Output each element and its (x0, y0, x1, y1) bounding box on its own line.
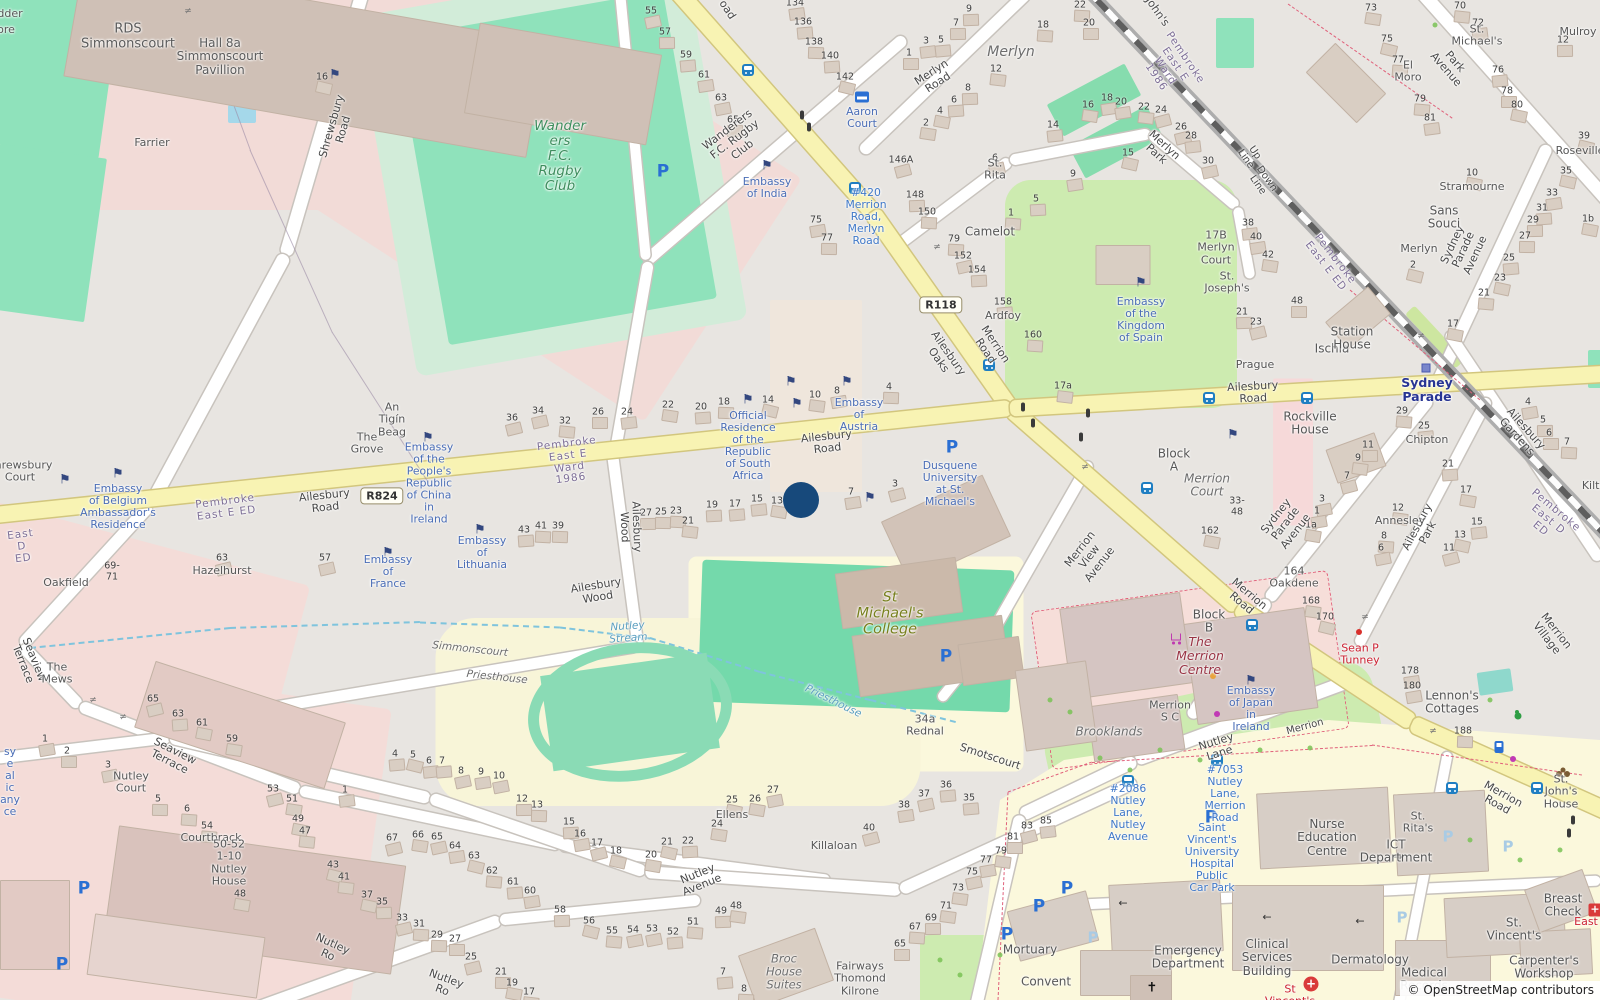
label-killaloan: Killaloan (811, 840, 858, 852)
building (1184, 140, 1201, 154)
building (909, 200, 925, 213)
label-mulroy: Mulroy (1559, 26, 1596, 38)
building (1537, 425, 1553, 437)
label-fairways: Fairways Thomond Kilrone (834, 961, 886, 998)
parking-icon[interactable]: P (1001, 927, 1013, 944)
building (738, 994, 755, 1000)
embassy-flag-icon: ⚑ (1135, 277, 1147, 290)
building (1007, 842, 1023, 854)
building (486, 875, 503, 888)
label-embassy: Embassy of Lithuania (457, 535, 507, 571)
clinic-icon: + (1589, 904, 1600, 917)
building (1030, 204, 1047, 217)
building (797, 26, 814, 39)
building (1362, 450, 1378, 462)
building (1232, 885, 1384, 971)
building (697, 79, 715, 93)
gate-icon: ≠ (1081, 464, 1089, 473)
building (948, 104, 965, 117)
building (971, 275, 988, 288)
label-33-48: 33-48 (1229, 496, 1245, 517)
parking-lot-icon: P (1443, 830, 1454, 845)
building (1066, 178, 1084, 192)
building (592, 417, 608, 429)
building (1519, 928, 1593, 978)
bus-stop-icon[interactable] (849, 182, 861, 194)
building (606, 935, 623, 948)
bus-stop-icon[interactable] (1203, 392, 1215, 404)
train-station-icon[interactable] (1422, 364, 1431, 373)
building (714, 102, 732, 117)
traffic-signal-icon (1567, 829, 1571, 838)
label-merlyn: Merlyn (987, 45, 1035, 61)
building (1391, 512, 1409, 526)
embassy-flag-icon: ⚑ (785, 376, 797, 389)
building (727, 125, 743, 137)
building (1543, 438, 1559, 450)
building (1442, 551, 1461, 567)
poi-dot-icon (1214, 711, 1220, 717)
embassy-flag-icon: ⚑ (382, 547, 394, 560)
embassy-flag-icon: ⚑ (1245, 675, 1257, 688)
label-official: Official Residence of the Republic of So… (720, 410, 775, 482)
parking-icon[interactable]: P (56, 957, 68, 974)
location-marker[interactable] (783, 482, 819, 518)
map-canvas[interactable]: ⚑⚑⚑⚑⚑⚑⚑⚑⚑⚑⚑⚑⚑⚑⚑PPPPPPPPPPPPP≠≠≠≠≠≠≠≠←←→←… (0, 0, 1600, 1000)
building (935, 44, 952, 57)
tree-icon (1468, 838, 1473, 843)
building (644, 859, 662, 874)
oneway-arrow-icon: ← (1262, 912, 1271, 923)
fuel-station-icon (1495, 741, 1504, 753)
embassy-flag-icon: ⚑ (422, 432, 434, 445)
building (710, 828, 728, 842)
embassy-flag-icon: ⚑ (841, 376, 853, 389)
building (1501, 96, 1517, 108)
building (431, 940, 447, 953)
building (1417, 430, 1434, 444)
building (518, 534, 535, 547)
building (738, 928, 834, 1000)
building (725, 803, 743, 818)
building (921, 217, 938, 230)
building (1046, 129, 1063, 143)
building (1459, 494, 1477, 509)
building (917, 797, 935, 812)
building (994, 855, 1012, 869)
parking-icon[interactable]: P (657, 164, 669, 181)
bus-stop-icon[interactable] (1211, 754, 1223, 766)
route-shield: R824 (360, 487, 403, 504)
building (464, 960, 482, 976)
building (531, 810, 547, 823)
building (1005, 217, 1022, 230)
parking-lot-icon: P (1088, 931, 1099, 946)
shopping-cart-icon (1171, 634, 1181, 641)
label-shrewsbury: Shrewsbury Court (0, 460, 52, 485)
building (933, 115, 951, 130)
tree-icon (1308, 746, 1313, 751)
building (948, 244, 965, 257)
building (1137, 111, 1154, 125)
building (467, 859, 485, 875)
tree-icon (938, 958, 943, 963)
building (413, 929, 430, 942)
building (1121, 156, 1139, 171)
label-block: Block A (1158, 448, 1190, 475)
building (563, 827, 580, 840)
building (1414, 103, 1431, 116)
embassy-flag-icon: ⚑ (329, 69, 341, 82)
building (1074, 10, 1091, 23)
community-icon (1561, 768, 1566, 773)
building (172, 718, 189, 731)
traffic-signal-icon (807, 123, 811, 132)
building (1471, 27, 1488, 41)
label-john-s: John's (1143, 0, 1172, 29)
landuse-area (770, 300, 862, 492)
building (1478, 297, 1495, 310)
building (554, 915, 570, 928)
landuse-area (0, 143, 107, 321)
building (903, 58, 919, 70)
building (376, 907, 392, 920)
building (516, 804, 532, 816)
building (718, 407, 734, 420)
building (233, 898, 251, 913)
building (1249, 241, 1267, 255)
bus-stop-icon[interactable] (742, 64, 754, 76)
poi-dot-icon (1510, 756, 1516, 762)
building (681, 525, 698, 539)
embassy-flag-icon: ⚑ (742, 394, 754, 407)
bus-stop-icon[interactable] (1141, 482, 1153, 494)
building (1510, 108, 1528, 123)
runner-icon (1515, 710, 1519, 714)
embassy-flag-icon: ⚑ (474, 524, 486, 537)
building (997, 306, 1014, 319)
building (523, 895, 541, 909)
building (430, 840, 448, 855)
building (1306, 43, 1387, 124)
parking-icon[interactable]: P (1205, 810, 1217, 827)
building (750, 503, 767, 517)
building (925, 923, 941, 935)
map-attribution: © OpenStreetMap contributors (1400, 981, 1600, 1000)
label-an-tig-n: An Tigín Beag (378, 402, 406, 439)
building (406, 758, 424, 774)
building (411, 839, 429, 853)
building (1442, 468, 1459, 481)
traffic-signal-icon (1021, 403, 1025, 412)
label-pembroke-east-e-ward-1986: Pembroke East E Ward 1986 (1134, 30, 1207, 106)
building (1536, 212, 1553, 225)
building (1557, 45, 1573, 57)
building (1081, 109, 1099, 123)
building (1403, 675, 1421, 689)
embassy-flag-icon: ⚑ (1227, 429, 1239, 442)
bus-stop-icon[interactable] (1246, 619, 1258, 631)
tree-icon (1198, 758, 1203, 763)
building (1241, 227, 1258, 241)
building (1423, 122, 1441, 136)
building (706, 510, 723, 523)
building (620, 416, 637, 430)
building (1577, 139, 1595, 155)
gate-icon: ≠ (1429, 728, 1437, 737)
building (963, 14, 979, 27)
label-merrion-village: Merrion Village (1528, 611, 1573, 659)
bus-stop-icon[interactable] (1122, 775, 1134, 787)
building (1249, 325, 1267, 341)
building (940, 789, 957, 802)
tree-icon (1158, 748, 1163, 753)
building (1083, 28, 1099, 40)
hotel-icon (855, 92, 869, 103)
parking-lot-icon: P (1397, 911, 1408, 926)
embassy-flag-icon: ⚑ (791, 398, 803, 411)
building (717, 976, 734, 989)
building (1453, 10, 1470, 24)
building (1364, 12, 1382, 26)
building (761, 403, 779, 419)
building (285, 803, 303, 817)
building (1457, 736, 1473, 749)
building (667, 936, 684, 949)
building (181, 813, 198, 826)
parking-lot-icon: P (1503, 840, 1514, 855)
building (395, 921, 413, 937)
building (888, 487, 907, 503)
street-road (144, 252, 290, 508)
building (1581, 223, 1599, 238)
building (1559, 174, 1577, 189)
traffic-signal-icon (1079, 433, 1083, 442)
building (1405, 690, 1423, 705)
label-prague: Prague (1236, 359, 1274, 371)
label-lennon-s: Lennon's Cottages (1425, 690, 1479, 717)
building (201, 830, 218, 843)
building (645, 933, 663, 948)
tree-icon (1048, 698, 1053, 703)
route-shield: R118 (919, 296, 962, 313)
tree-icon (998, 953, 1003, 958)
parking-icon[interactable]: P (946, 440, 958, 457)
building (788, 7, 806, 21)
poi-dot-icon (1356, 629, 1362, 635)
building (535, 531, 552, 544)
tree-icon (1488, 698, 1493, 703)
label-aaron: Aaron Court (846, 106, 878, 130)
building (1527, 225, 1543, 237)
building (1291, 306, 1307, 318)
building (821, 243, 837, 255)
label-ailesbury-road: Ailesbury Road (298, 487, 351, 517)
primary-road (1004, 402, 1242, 614)
label-oad: oad (716, 0, 737, 22)
parking-icon[interactable]: P (940, 649, 952, 666)
oneway-arrow-icon: ← (1355, 916, 1364, 927)
label-nutley-ro: Nutley Ro (423, 967, 465, 1000)
label-ailesbury-wood: Ailesbury Wood (570, 576, 624, 608)
building (939, 910, 957, 924)
building (682, 846, 699, 859)
tree-icon (958, 973, 963, 978)
building (318, 561, 336, 576)
tree-icon (1098, 756, 1103, 761)
building (558, 425, 575, 439)
building (919, 45, 936, 59)
building (225, 743, 243, 757)
building (337, 881, 354, 895)
building (1380, 42, 1398, 58)
building (897, 809, 915, 823)
building (1519, 241, 1535, 253)
label-merrion-view-avenue: Merrion View Avenue (1063, 529, 1118, 585)
building (809, 224, 827, 239)
bus-stop-icon[interactable] (1301, 392, 1313, 404)
building (1503, 262, 1520, 275)
bus-stop-icon[interactable] (1531, 782, 1543, 794)
building (894, 949, 910, 961)
building (61, 756, 77, 768)
building (950, 28, 966, 40)
building (1374, 552, 1392, 567)
building (729, 910, 747, 924)
parking-icon[interactable]: P (78, 881, 90, 898)
building (1304, 529, 1322, 544)
tree-icon (1433, 23, 1438, 28)
building (1351, 462, 1369, 476)
building (1393, 790, 1489, 877)
building (808, 399, 826, 413)
building (824, 60, 841, 73)
gate-icon: ≠ (1361, 614, 1369, 623)
building (919, 127, 937, 141)
bus-stop-icon[interactable] (983, 359, 995, 371)
building (909, 931, 926, 944)
label-merlyn: Merlyn (1400, 243, 1437, 255)
building (1154, 113, 1173, 129)
building (522, 996, 539, 1000)
traffic-signal-icon (1031, 419, 1035, 428)
tree-icon (1518, 858, 1523, 863)
building (474, 776, 492, 790)
building (609, 854, 627, 869)
building (1261, 259, 1279, 273)
tree-icon (1068, 710, 1073, 715)
label-sans: Sans Souci (1428, 205, 1461, 232)
building (1493, 281, 1511, 296)
building (1027, 339, 1044, 352)
building (680, 59, 697, 72)
building (505, 987, 523, 1000)
parking-icon[interactable]: P (1061, 881, 1073, 898)
tree-icon (1128, 768, 1133, 773)
building (844, 496, 862, 510)
building (957, 636, 1024, 686)
building (1470, 526, 1487, 540)
building (338, 794, 355, 808)
building (449, 944, 465, 956)
building (1108, 879, 1224, 957)
building (1406, 268, 1424, 284)
building (436, 765, 453, 778)
building (695, 411, 712, 424)
traffic-signal-icon (800, 111, 804, 120)
building (963, 802, 980, 815)
building (1056, 390, 1073, 404)
building (894, 163, 913, 179)
building (298, 835, 315, 849)
building (862, 831, 881, 847)
building (729, 508, 746, 521)
building (152, 804, 168, 816)
hospital-icon: + (1304, 977, 1319, 992)
building (1561, 447, 1578, 460)
parking-icon[interactable]: P (1033, 899, 1045, 916)
building (1203, 535, 1221, 550)
building (748, 803, 766, 818)
building (956, 259, 974, 274)
building (1114, 106, 1132, 120)
label-merrion: Merrion Court (1184, 473, 1230, 500)
label-sydney-parade-avenue: Sydney Parade Avenue (1439, 224, 1490, 277)
bus-stop-icon[interactable] (1446, 782, 1458, 794)
landuse-area (1216, 18, 1254, 68)
building (1201, 164, 1219, 179)
gate-icon: ≠ (933, 244, 941, 253)
building (552, 531, 568, 544)
landuse-area (1477, 668, 1514, 696)
poi-dot-icon (1210, 673, 1216, 679)
building (385, 841, 403, 857)
building (505, 421, 523, 437)
building (1545, 197, 1563, 211)
building (687, 926, 704, 939)
building (659, 37, 675, 49)
building (1037, 29, 1054, 42)
oneway-arrow-icon: → (1393, 852, 1402, 863)
embassy-flag-icon: ⚑ (761, 160, 773, 173)
church-cross-icon: ✝ (1147, 982, 1158, 995)
label-the-grove: The Grove (351, 432, 384, 457)
building (661, 409, 679, 423)
embassy-flag-icon: ⚑ (864, 492, 876, 505)
embassy-flag-icon: ⚑ (59, 474, 71, 487)
building (883, 392, 899, 405)
oneway-arrow-icon: ← (1118, 898, 1127, 909)
building (1236, 317, 1252, 330)
building (1304, 605, 1322, 619)
building (626, 934, 644, 949)
building (640, 518, 656, 530)
building (507, 886, 524, 899)
building (1465, 177, 1483, 192)
gate-icon: ≠ (1417, 333, 1425, 342)
gate-icon: ≠ (89, 697, 97, 706)
building (1491, 74, 1508, 88)
tree-icon (1258, 748, 1263, 753)
building (655, 517, 671, 529)
building (1392, 64, 1409, 77)
building (962, 93, 978, 106)
building (1396, 415, 1413, 428)
building (988, 161, 1006, 176)
traffic-signal-icon (1571, 816, 1575, 825)
building (531, 414, 549, 429)
building (808, 47, 824, 60)
